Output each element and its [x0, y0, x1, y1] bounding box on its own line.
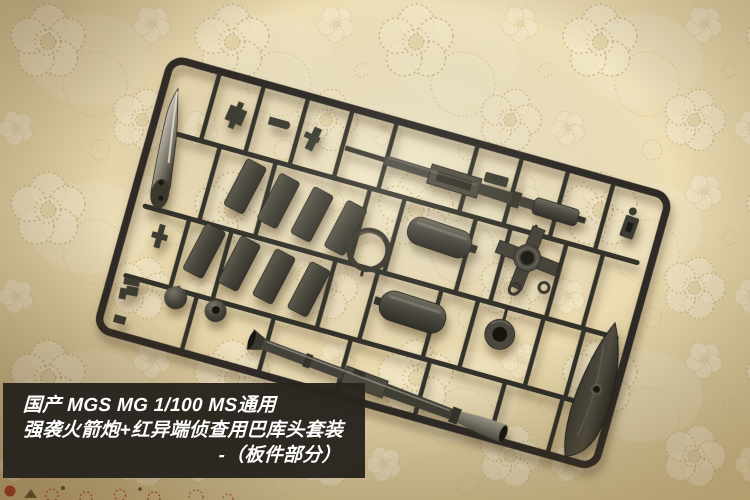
caption-line-2: 强袭火箭炮+红异端侦查用巴库头套装 — [23, 418, 350, 443]
caption-box: 国产 MGS MG 1/100 MS通用 强袭火箭炮+红异端侦查用巴库头套装 -… — [3, 383, 365, 478]
product-photo: 国产 MGS MG 1/100 MS通用 强袭火箭炮+红异端侦查用巴库头套装 -… — [0, 0, 750, 500]
caption-line-1: 国产 MGS MG 1/100 MS通用 — [23, 393, 350, 418]
caption-line-3: -（板件部分） — [23, 443, 350, 468]
